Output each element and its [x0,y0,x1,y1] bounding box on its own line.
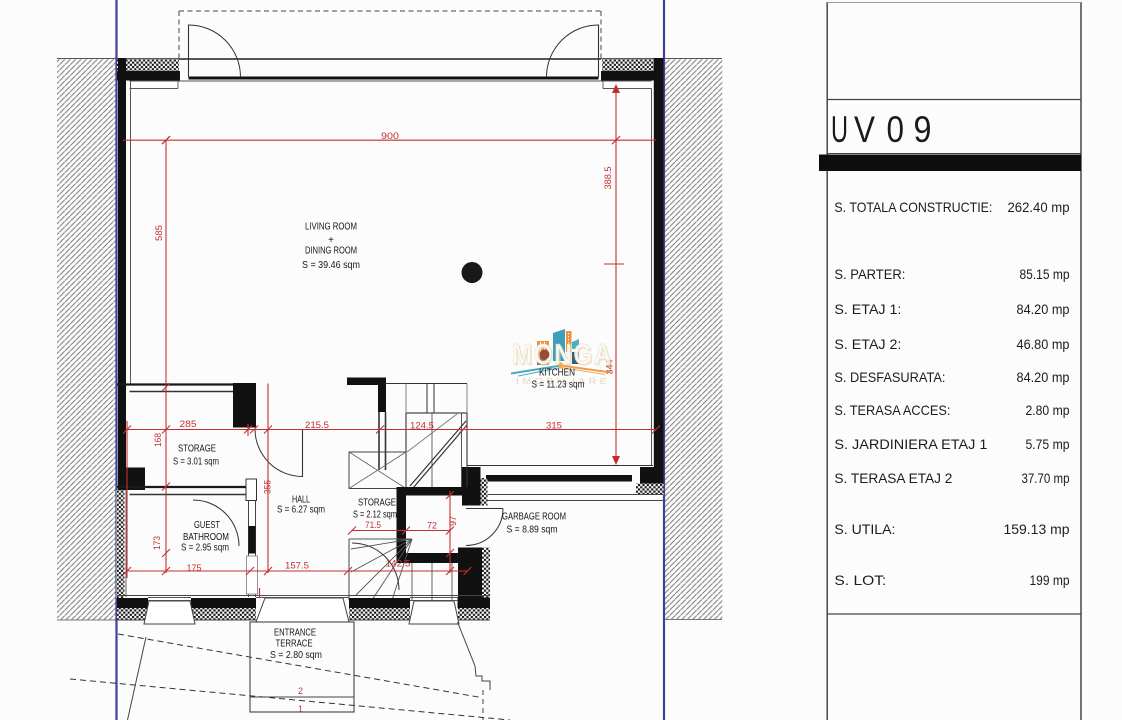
svg-text:LIVING ROOM: LIVING ROOM [305,222,357,233]
svg-text:S. JARDINIERA ETAJ 1: S. JARDINIERA ETAJ 1 [834,436,987,452]
svg-text:S = 2.80 sqm: S = 2.80 sqm [270,650,322,661]
svg-text:V: V [854,109,875,150]
svg-text:157.5: 157.5 [285,561,309,571]
svg-text:159.13 mp: 159.13 mp [1004,522,1070,537]
svg-text:71.5: 71.5 [365,520,381,530]
svg-text:S = 11.23 sqm: S = 11.23 sqm [532,380,585,391]
svg-text:285: 285 [180,419,197,429]
svg-text:0: 0 [887,109,905,150]
svg-text:S. ETAJ 2:: S. ETAJ 2: [834,336,901,352]
svg-text:S. ETAJ 1:: S. ETAJ 1: [834,301,901,317]
svg-text:37.70 mp: 37.70 mp [1022,471,1070,486]
svg-text:S = 6.27 sqm: S = 6.27 sqm [277,505,325,516]
svg-text:+: + [328,235,334,246]
svg-text:215.5: 215.5 [305,420,329,430]
svg-text:72: 72 [427,521,437,531]
svg-text:GUEST: GUEST [194,520,220,531]
svg-text:TERRACE: TERRACE [276,639,313,650]
svg-text:97: 97 [448,516,458,526]
svg-text:175: 175 [187,563,202,573]
svg-text:S. TERASA ACCES:: S. TERASA ACCES: [834,402,950,418]
svg-text:168: 168 [153,433,163,447]
svg-text:900: 900 [381,131,399,141]
svg-text:STORAGE: STORAGE [358,498,396,509]
svg-text:84.20 mp: 84.20 mp [1017,370,1070,385]
svg-text:S. LOT:: S. LOT: [834,572,886,588]
svg-text:S = 8.89 sqm: S = 8.89 sqm [507,525,558,536]
svg-text:S. TOTALA CONSTRUCTIE:: S. TOTALA CONSTRUCTIE: [834,199,992,215]
svg-text:S = 2.95 sqm: S = 2.95 sqm [181,543,229,554]
svg-text:2.80 mp: 2.80 mp [1026,403,1070,418]
svg-text:199 mp: 199 mp [1030,573,1070,588]
svg-text:84.20 mp: 84.20 mp [1017,302,1070,317]
svg-text:124.5: 124.5 [410,421,434,431]
svg-text:S. UTILA:: S. UTILA: [834,521,895,537]
svg-text:5.75 mp: 5.75 mp [1026,437,1070,452]
svg-text:173: 173 [152,536,162,550]
svg-text:U: U [831,109,848,150]
svg-text:355: 355 [263,480,273,494]
svg-text:STORAGE: STORAGE [178,444,216,455]
svg-text:BATHROOM: BATHROOM [183,532,229,543]
svg-text:388.5: 388.5 [603,167,613,190]
svg-text:1: 1 [298,704,303,714]
svg-text:DINING ROOM: DINING ROOM [305,246,357,257]
svg-text:KITCHEN: KITCHEN [539,368,575,379]
svg-text:585: 585 [154,225,164,241]
svg-text:2: 2 [298,686,303,696]
svg-text:142.5: 142.5 [386,559,411,569]
svg-text:S = 3.01 sqm: S = 3.01 sqm [173,457,219,468]
svg-text:S. PARTER:: S. PARTER: [834,266,905,282]
svg-text:262.40 mp: 262.40 mp [1008,200,1070,215]
svg-text:46.80 mp: 46.80 mp [1017,337,1070,352]
svg-text:9: 9 [914,109,932,150]
svg-text:S. DESFASURATA:: S. DESFASURATA: [834,369,945,385]
svg-text:GARBAGE ROOM: GARBAGE ROOM [502,512,566,523]
svg-text:S. TERASA ETAJ 2: S. TERASA ETAJ 2 [834,470,952,486]
svg-text:S = 2.12 sqm: S = 2.12 sqm [353,510,397,521]
svg-text:85.15 mp: 85.15 mp [1020,267,1070,282]
svg-text:S = 39.46 sqm: S = 39.46 sqm [302,260,360,271]
svg-text:315: 315 [546,421,562,431]
svg-text:ENTRANCE: ENTRANCE [274,628,316,639]
